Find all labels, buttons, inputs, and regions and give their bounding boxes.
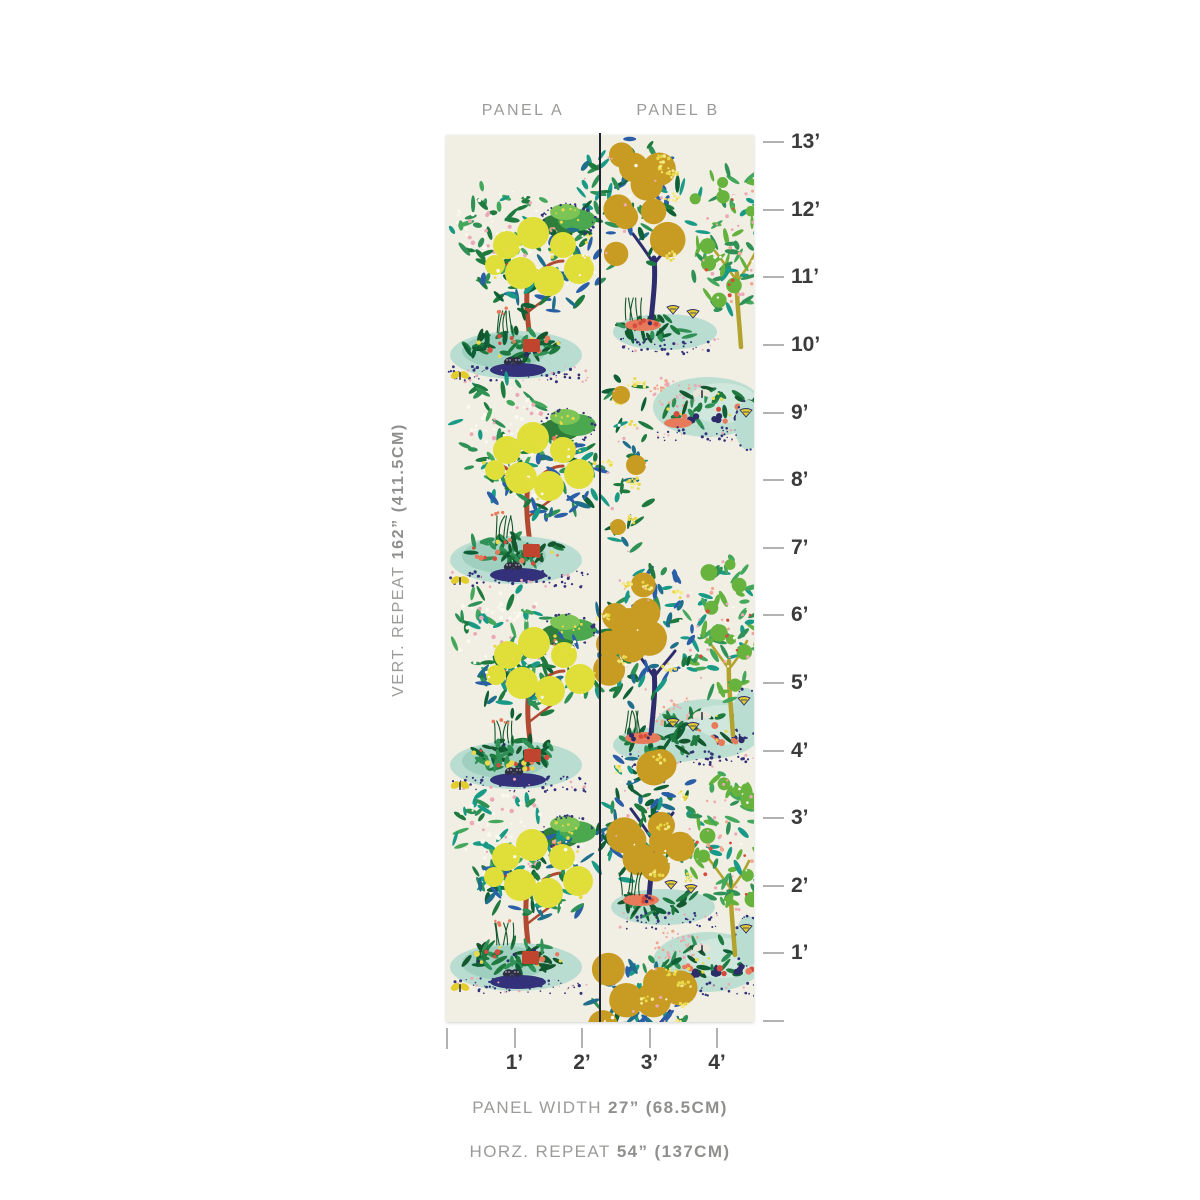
vertical-ruler-tick: [763, 750, 784, 752]
vertical-ruler-tick: [763, 209, 784, 211]
horizontal-ruler-tick: [581, 1028, 583, 1048]
vertical-ruler-label: 12’: [791, 198, 820, 222]
vertical-ruler-label: 13’: [791, 130, 820, 154]
wallpaper-dimension-diagram: PANEL A PANEL B VERT. REPEAT 162” (411.5…: [0, 0, 1200, 1200]
horizontal-repeat-caption-prefix: HORZ. REPEAT: [470, 1142, 611, 1161]
horizontal-ruler-tick: [649, 1028, 651, 1048]
vertical-ruler-tick: [763, 952, 784, 954]
horizontal-repeat-caption: HORZ. REPEAT 54” (137CM): [470, 1142, 731, 1162]
panel-width-caption-value: 27” (68.5CM): [608, 1098, 728, 1117]
horizontal-ruler-tick: [514, 1028, 516, 1048]
panel-width-caption: PANEL WIDTH 27” (68.5CM): [472, 1098, 728, 1118]
vertical-ruler-label: 11’: [791, 265, 819, 289]
vertical-ruler-label: 5’: [791, 671, 809, 695]
vertical-ruler-label: 8’: [791, 468, 809, 492]
vertical-ruler-tick: [763, 412, 784, 414]
panel-a-label: PANEL A: [482, 102, 564, 120]
vertical-ruler-tick: [763, 817, 784, 819]
vertical-ruler-tick: [763, 276, 784, 278]
vertical-ruler-label: 9’: [791, 401, 809, 425]
vertical-ruler-zero-tick: [763, 1020, 784, 1022]
vertical-repeat-caption-value: 162” (411.5CM): [390, 423, 407, 559]
vertical-ruler-label: 2’: [791, 874, 809, 898]
horizontal-ruler-label: 2’: [560, 1051, 604, 1075]
vertical-ruler-label: 6’: [791, 603, 809, 627]
vertical-ruler-tick: [763, 547, 784, 549]
vertical-repeat-caption: VERT. REPEAT 162” (411.5CM): [390, 423, 408, 697]
vertical-ruler-label: 3’: [791, 806, 809, 830]
horizontal-ruler-label: 1’: [493, 1051, 537, 1075]
vertical-ruler-tick: [763, 885, 784, 887]
vertical-ruler-label: 4’: [791, 739, 809, 763]
vertical-ruler-label: 1’: [791, 941, 809, 965]
vertical-ruler-tick: [763, 682, 784, 684]
vertical-ruler-label: 7’: [791, 536, 809, 560]
vertical-ruler-tick: [763, 614, 784, 616]
vertical-ruler-tick: [763, 344, 784, 346]
panel-divider-line: [599, 133, 601, 1022]
panel-b-label: PANEL B: [636, 102, 719, 120]
vertical-ruler-label: 10’: [791, 333, 820, 357]
horizontal-ruler-zero-tick: [446, 1028, 448, 1049]
horizontal-ruler-label: 4’: [695, 1051, 739, 1075]
horizontal-repeat-caption-value: 54” (137CM): [617, 1142, 731, 1161]
horizontal-ruler-label: 3’: [628, 1051, 672, 1075]
horizontal-ruler-tick: [716, 1028, 718, 1048]
vertical-ruler-tick: [763, 479, 784, 481]
vertical-repeat-caption-prefix: VERT. REPEAT: [390, 565, 407, 697]
panel-width-caption-prefix: PANEL WIDTH: [472, 1098, 602, 1117]
vertical-ruler-tick: [763, 141, 784, 143]
